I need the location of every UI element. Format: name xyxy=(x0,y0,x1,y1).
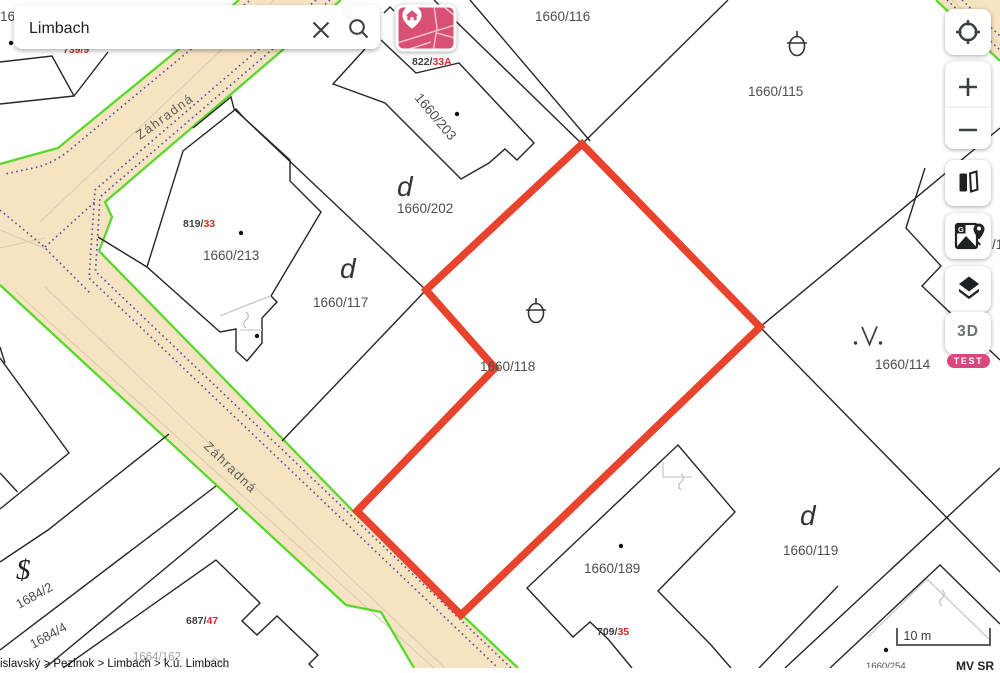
svg-text:1660/118: 1660/118 xyxy=(480,359,535,374)
svg-text:1660/189: 1660/189 xyxy=(584,561,640,576)
svg-text:d: d xyxy=(340,253,357,284)
svg-text:G: G xyxy=(958,225,964,234)
svg-text:819/33: 819/33 xyxy=(183,218,215,230)
svg-text:d: d xyxy=(800,500,817,531)
svg-text:1660/202: 1660/202 xyxy=(397,201,453,216)
svg-text:$: $ xyxy=(16,554,31,586)
svg-text:1660/203: 1660/203 xyxy=(412,90,460,143)
svg-text:1660/213: 1660/213 xyxy=(203,248,259,263)
svg-text:1660/117: 1660/117 xyxy=(313,295,368,310)
svg-text:10 m: 10 m xyxy=(904,629,932,643)
svg-text:687/47: 687/47 xyxy=(186,615,218,627)
svg-text:709/35: 709/35 xyxy=(597,626,629,638)
svg-text:/1: /1 xyxy=(992,237,1000,252)
svg-text:1660/116: 1660/116 xyxy=(535,9,590,24)
svg-text:d: d xyxy=(397,171,414,202)
svg-text:1660/119: 1660/119 xyxy=(783,543,838,558)
svg-text:16: 16 xyxy=(0,9,15,24)
svg-text:1660/114: 1660/114 xyxy=(875,357,931,372)
svg-text:1660/115: 1660/115 xyxy=(748,84,803,99)
